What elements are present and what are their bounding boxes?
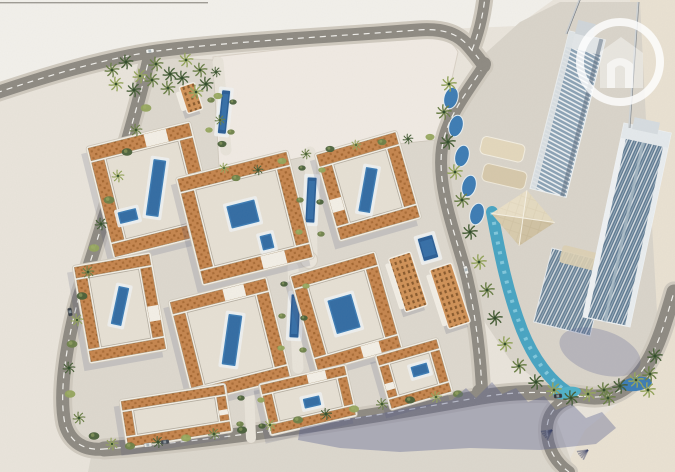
masterplan-rendering (0, 0, 675, 472)
photo-grain (0, 0, 675, 472)
grain-overlay (0, 0, 675, 472)
masterplan-rendering-canvas (0, 0, 675, 472)
